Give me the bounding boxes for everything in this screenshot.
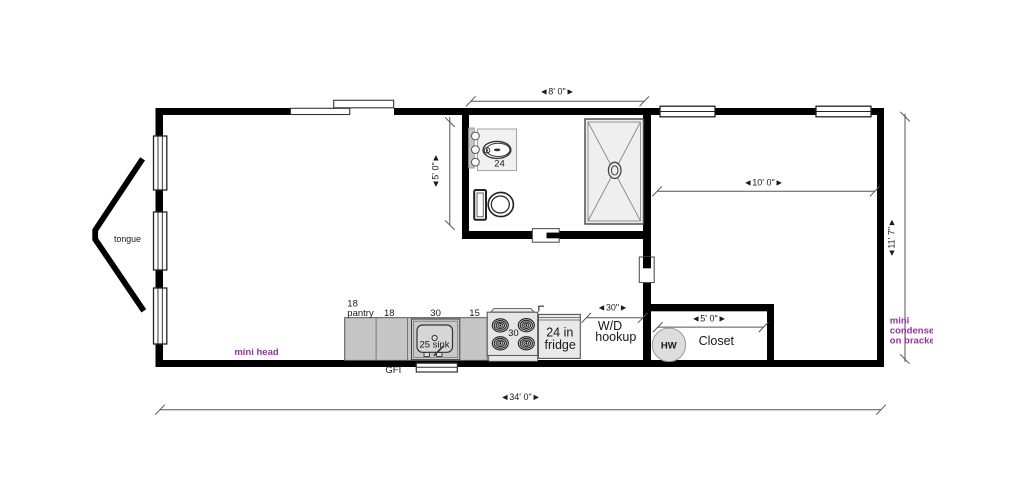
svg-text:mini head: mini head: [234, 347, 279, 358]
svg-text:pantry: pantry: [347, 308, 374, 319]
svg-text:15: 15: [469, 308, 480, 319]
svg-text:Closet: Closet: [699, 334, 735, 348]
svg-text:on bracket: on bracket: [890, 336, 939, 347]
svg-text:◄30"►: ◄30"►: [597, 302, 628, 312]
svg-text:30: 30: [430, 308, 441, 319]
svg-text:hookup: hookup: [595, 330, 636, 344]
svg-text:18: 18: [384, 308, 395, 319]
svg-text:◄8' 0"►: ◄8' 0"►: [539, 87, 574, 97]
svg-text:24: 24: [494, 159, 505, 170]
svg-text:◄5' 0"►: ◄5' 0"►: [691, 313, 726, 323]
svg-text:30: 30: [508, 328, 519, 339]
svg-text:tongue: tongue: [114, 234, 141, 244]
svg-text:fridge: fridge: [545, 338, 576, 352]
svg-text:◄11' 7"►: ◄11' 7"►: [886, 218, 896, 258]
svg-text:25 sink: 25 sink: [419, 340, 449, 351]
svg-text:◄10' 0"►: ◄10' 0"►: [743, 177, 783, 187]
svg-text:◄34' 0"►: ◄34' 0"►: [500, 392, 540, 402]
svg-text:GFI: GFI: [385, 365, 401, 376]
svg-text:HW: HW: [661, 340, 677, 351]
svg-text:◄5' 0"►: ◄5' 0"►: [431, 153, 441, 188]
